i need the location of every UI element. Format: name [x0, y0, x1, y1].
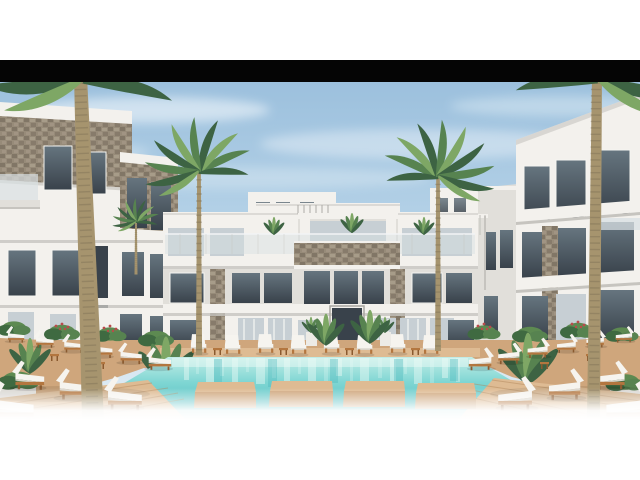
- bottom-fade: [0, 388, 640, 420]
- page: [0, 0, 640, 480]
- glass-balcony: [0, 174, 38, 202]
- stone-parapet: [294, 243, 400, 265]
- letterbox-bar: [0, 60, 640, 82]
- window: [44, 146, 72, 190]
- glass-balcony: [596, 218, 640, 230]
- render-scene: [0, 82, 640, 420]
- resort-render-photo: [0, 82, 640, 420]
